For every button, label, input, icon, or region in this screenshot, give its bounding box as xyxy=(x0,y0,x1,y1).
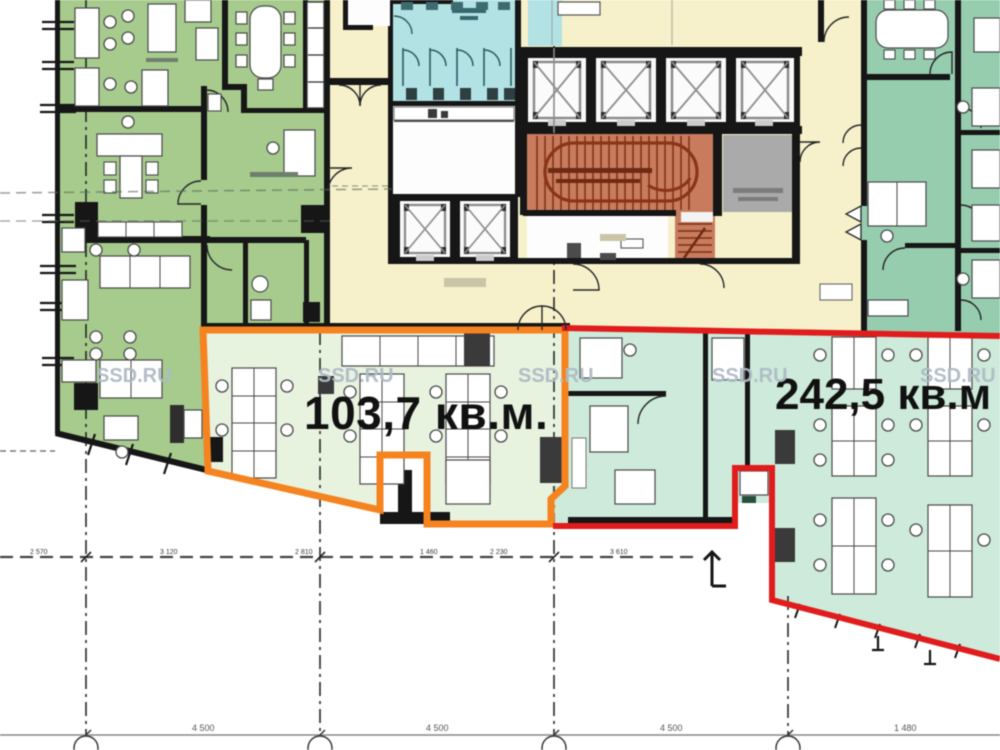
svg-text:SSD.RU: SSD.RU xyxy=(318,365,394,387)
svg-text:SSD.RU: SSD.RU xyxy=(96,365,172,387)
svg-text:3 610: 3 610 xyxy=(610,549,628,556)
svg-text:SSD.RU: SSD.RU xyxy=(920,365,996,387)
svg-text:103,7 кв.м.: 103,7 кв.м. xyxy=(304,387,548,439)
svg-text:2 810: 2 810 xyxy=(295,549,313,556)
svg-text:2 230: 2 230 xyxy=(490,549,508,556)
svg-text:3 120: 3 120 xyxy=(160,549,178,556)
svg-text:1 460: 1 460 xyxy=(420,549,438,556)
svg-text:SSD.RU: SSD.RU xyxy=(712,365,788,387)
svg-text:1 480: 1 480 xyxy=(894,723,917,733)
svg-text:4 500: 4 500 xyxy=(426,723,449,733)
svg-text:SSD.RU: SSD.RU xyxy=(518,365,594,387)
svg-text:4 500: 4 500 xyxy=(192,723,215,733)
svg-text:4 500: 4 500 xyxy=(660,723,683,733)
svg-text:2 570: 2 570 xyxy=(30,549,48,556)
